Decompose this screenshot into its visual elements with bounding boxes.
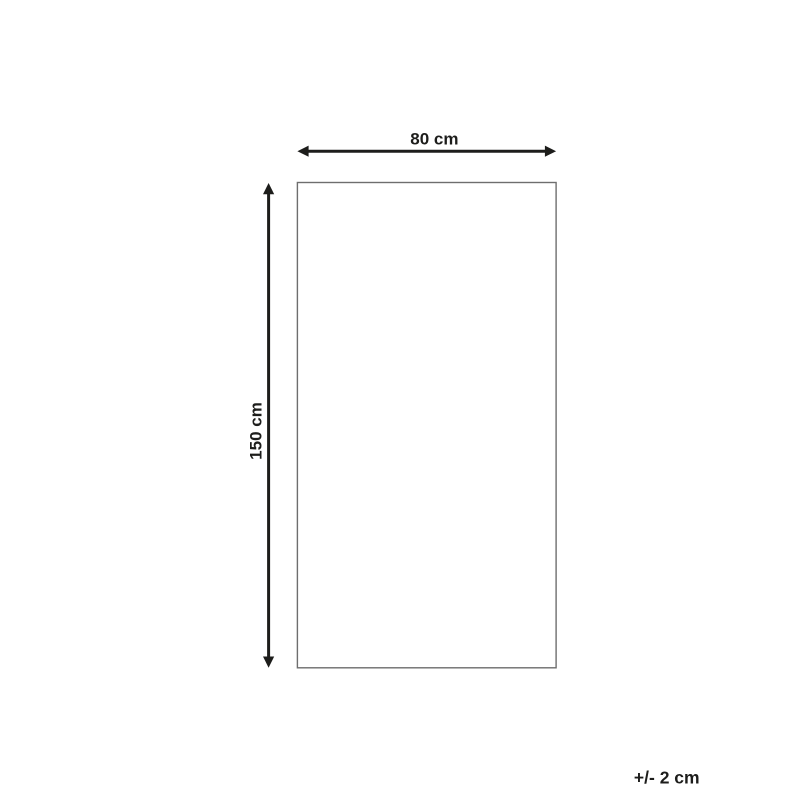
svg-text:80 cm: 80 cm [410, 130, 458, 149]
svg-text:150 cm: 150 cm [246, 402, 265, 460]
svg-text:+/- 2 cm: +/- 2 cm [634, 768, 700, 788]
